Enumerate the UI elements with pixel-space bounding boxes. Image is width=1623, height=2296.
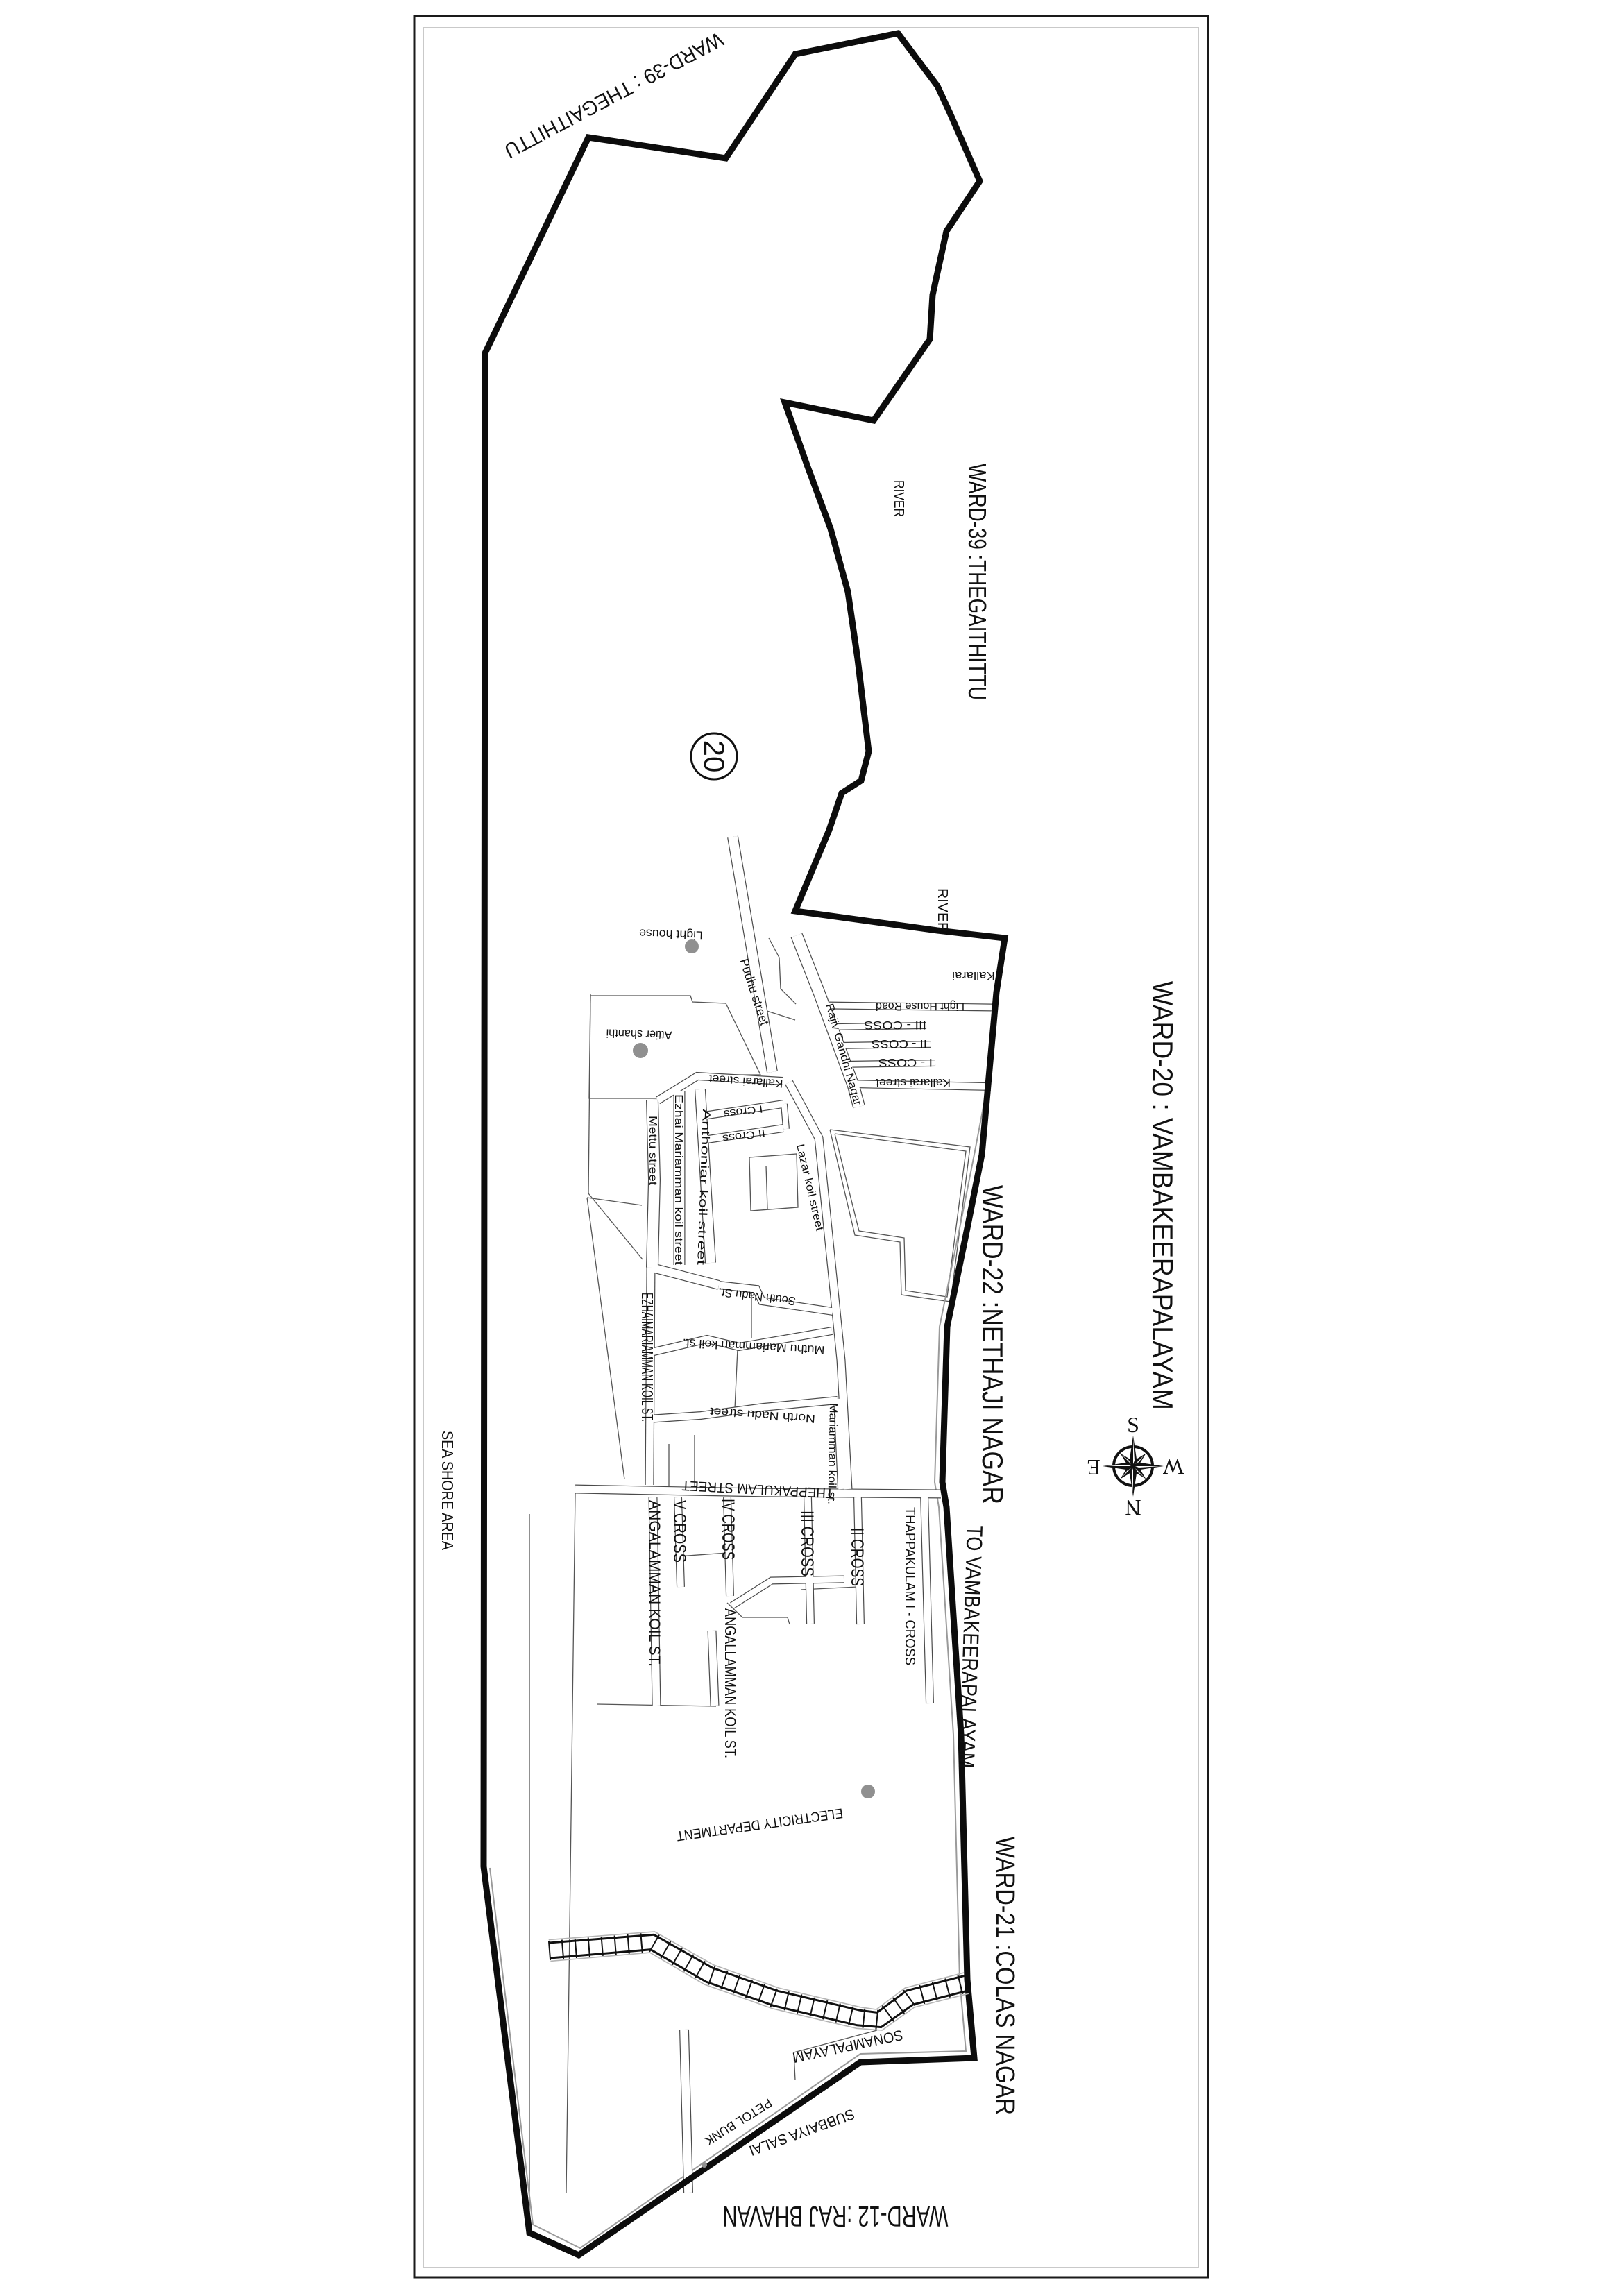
svg-text:SEA SHORE AREA: SEA SHORE AREA xyxy=(439,1431,457,1551)
svg-text:ANGALAMMAN KOIL ST.: ANGALAMMAN KOIL ST. xyxy=(646,1500,663,1667)
svg-text:N: N xyxy=(1125,1495,1141,1520)
svg-text:Attier shanthi: Attier shanthi xyxy=(606,1026,672,1041)
svg-text:Mettu street: Mettu street xyxy=(647,1116,658,1186)
svg-text:S: S xyxy=(1127,1412,1139,1437)
svg-text:Light House Road: Light House Road xyxy=(876,1000,965,1013)
svg-text:E: E xyxy=(1087,1455,1101,1480)
svg-text:Kallarai street: Kallarai street xyxy=(876,1076,951,1089)
svg-text:IV CROSS: IV CROSS xyxy=(718,1499,738,1560)
svg-text:WARD-21 :COLAS NAGAR: WARD-21 :COLAS NAGAR xyxy=(990,1837,1019,2115)
svg-text:RIVER: RIVER xyxy=(891,480,906,517)
svg-text:Light house: Light house xyxy=(639,926,704,942)
svg-text:I - COSS: I - COSS xyxy=(878,1056,933,1069)
svg-text:W: W xyxy=(1162,1454,1184,1479)
svg-text:Ezhai Mariamman koil street: Ezhai Mariamman koil street xyxy=(672,1094,684,1266)
svg-text:III - COSS: III - COSS xyxy=(864,1019,926,1032)
svg-text:THAPPAKULAM I - CROSS: THAPPAKULAM I - CROSS xyxy=(902,1507,917,1665)
svg-text:ANGALLAMMAN KOIL ST.: ANGALLAMMAN KOIL ST. xyxy=(722,1608,739,1758)
svg-text:RIVER: RIVER xyxy=(935,888,950,933)
svg-text:EZHAIMARIAMMAN KOIL ST.: EZHAIMARIAMMAN KOIL ST. xyxy=(638,1293,656,1422)
svg-text:II CROSS: II CROSS xyxy=(847,1528,867,1586)
svg-text:V CROSS: V CROSS xyxy=(670,1500,689,1563)
svg-text:WARD-22 :NETHAJI NAGAR: WARD-22 :NETHAJI NAGAR xyxy=(976,1185,1009,1504)
svg-text:II - COSS: II - COSS xyxy=(872,1037,927,1051)
svg-text:WARD-39 :THEGAITHITTU: WARD-39 :THEGAITHITTU xyxy=(963,464,992,700)
svg-text:WARD-20 : VAMBAKEERAPALAYAM: WARD-20 : VAMBAKEERAPALAYAM xyxy=(1146,981,1179,1410)
svg-text:20: 20 xyxy=(698,740,731,773)
svg-text:Kallarai: Kallarai xyxy=(952,969,995,981)
svg-text:III CROSS: III CROSS xyxy=(797,1511,817,1576)
svg-text:WARD-12 :RAJ BHAVAN: WARD-12 :RAJ BHAVAN xyxy=(723,2200,949,2233)
